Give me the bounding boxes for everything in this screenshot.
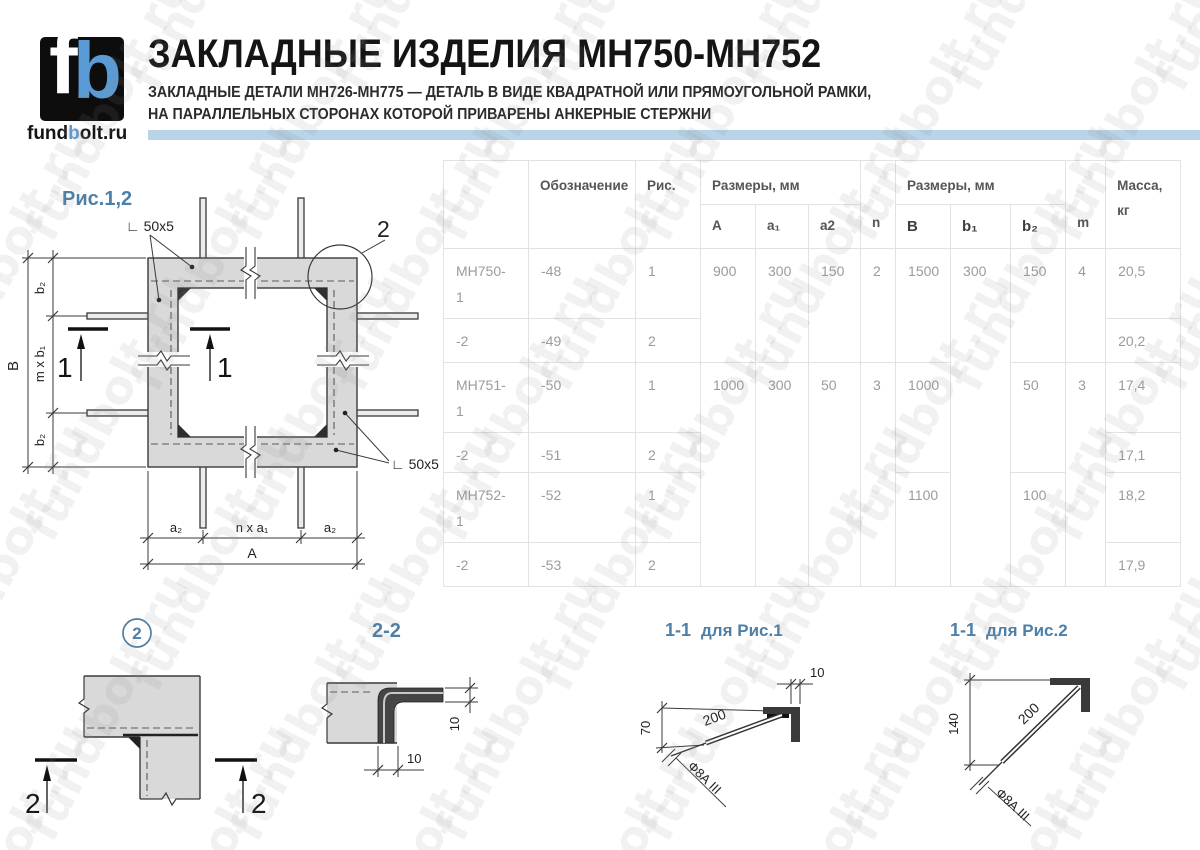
detail-2-2-dim-bottom: 10 bbox=[407, 751, 421, 766]
cell-designation: -52 bbox=[529, 473, 636, 543]
detail-ref-label: 2 bbox=[377, 216, 390, 242]
dim-B: B bbox=[5, 361, 22, 371]
col-header-b2: b₂ bbox=[1011, 205, 1066, 249]
detail-2-drawing: 2 2 bbox=[25, 676, 267, 819]
accent-divider bbox=[148, 130, 1200, 140]
cell-mass: 17,4 bbox=[1106, 363, 1181, 433]
main-drawing: 2 1 1 B b₂ m x b₁ b₂ a₂ n x a₁ a₂ A ∟ 50… bbox=[0, 150, 460, 600]
logo-letter-b: b bbox=[73, 31, 122, 111]
detail-2-2-dim-right: 10 bbox=[447, 717, 462, 731]
logo: b f bbox=[40, 37, 124, 121]
cell-m: 3 bbox=[1066, 363, 1106, 587]
cell-mass: 17,9 bbox=[1106, 543, 1181, 587]
details-drawing: 2 2 2 bbox=[0, 600, 1200, 850]
cell-fig: 1 bbox=[636, 249, 701, 319]
table-row: МН750-1 -48 1 900 300 150 2 1500 300 150… bbox=[444, 249, 1181, 319]
col-group-sizes-a: Размеры, мм bbox=[701, 161, 861, 205]
cell-fig: 1 bbox=[636, 473, 701, 543]
col-header-a1: a₁ bbox=[756, 205, 809, 249]
col-header-m: m bbox=[1066, 161, 1106, 249]
dim-b2-bottom: b₂ bbox=[32, 434, 47, 446]
col-header-n: n bbox=[861, 161, 896, 249]
cell-a1: 300 bbox=[756, 363, 809, 587]
dim-140: 140 bbox=[946, 713, 961, 735]
cell-designation: -53 bbox=[529, 543, 636, 587]
cell-mass: 20,5 bbox=[1106, 249, 1181, 319]
col-header-B: В bbox=[896, 205, 951, 249]
cell-m: 4 bbox=[1066, 249, 1106, 363]
detail-2-badge: 2 bbox=[123, 619, 151, 647]
dim-10-fig1: 10 bbox=[810, 665, 824, 680]
col-header-mass: Масса, кг bbox=[1106, 161, 1181, 249]
cell-mass: 18,2 bbox=[1106, 473, 1181, 543]
section-2-left-label: 2 bbox=[25, 788, 41, 819]
cell-fig: 2 bbox=[636, 433, 701, 473]
detail-2-2-drawing: 10 10 bbox=[322, 677, 478, 777]
page-title: ЗАКЛАДНЫЕ ИЗДЕЛИЯ МН750-МН752 bbox=[148, 33, 821, 75]
dim-m-b1: m x b₁ bbox=[32, 345, 47, 382]
section-1a-label: 1 bbox=[57, 352, 73, 383]
cell-designation: -48 bbox=[529, 249, 636, 319]
site-name: fundbolt.ru bbox=[27, 123, 127, 145]
section-marker-1a: 1 bbox=[57, 329, 108, 383]
cell-name: -2 bbox=[444, 433, 529, 473]
cell-b1: 300 bbox=[951, 249, 1011, 587]
cell-name: МН752-1 bbox=[444, 473, 529, 543]
cell-A: 1000 bbox=[701, 363, 756, 587]
cell-a2: 50 bbox=[809, 363, 861, 587]
detail-2-badge-label: 2 bbox=[132, 624, 141, 643]
col-header-fig: Рис. bbox=[636, 161, 701, 249]
col-header-name bbox=[444, 161, 529, 249]
cell-a2: 150 bbox=[809, 249, 861, 363]
cell-b2: 50 bbox=[1011, 363, 1066, 473]
cell-designation: -50 bbox=[529, 363, 636, 433]
dim-n-a1: n x a₁ bbox=[236, 520, 269, 535]
cell-mass: 20,2 bbox=[1106, 319, 1181, 363]
rod-spec-fig2: Ф8А III bbox=[993, 785, 1033, 823]
col-header-a2: a2 bbox=[809, 205, 861, 249]
cell-name: МН750-1 bbox=[444, 249, 529, 319]
cell-fig: 2 bbox=[636, 319, 701, 363]
section-1-1-fig1-drawing: Ф8А III 70 200 10 bbox=[638, 665, 824, 807]
dim-b2-top: b₂ bbox=[32, 282, 47, 294]
cell-mass: 17,1 bbox=[1106, 433, 1181, 473]
spec-table: Обозначение Рис. Размеры, мм n Размеры, … bbox=[443, 160, 1181, 587]
section-2-right-label: 2 bbox=[251, 788, 267, 819]
cell-B: 1500 bbox=[896, 249, 951, 363]
col-header-b1: b₁ bbox=[951, 205, 1011, 249]
section-marker-2-left: 2 bbox=[25, 760, 77, 819]
dim-A: A bbox=[247, 545, 257, 561]
cell-n: 3 bbox=[861, 363, 896, 587]
cell-n: 2 bbox=[861, 249, 896, 363]
cell-B: 1000 bbox=[896, 363, 951, 473]
col-header-A: A bbox=[701, 205, 756, 249]
subtitle-line-1: ЗАКЛАДНЫЕ ДЕТАЛИ МН726-МН775 — ДЕТАЛЬ В … bbox=[148, 82, 871, 104]
cell-b2: 100 bbox=[1011, 473, 1066, 587]
section-1b-label: 1 bbox=[217, 352, 233, 383]
angle-label-bottom: ∟ 50x5 bbox=[391, 456, 439, 472]
cell-name: -2 bbox=[444, 543, 529, 587]
subtitle-line-2: НА ПАРАЛЛЕЛЬНЫХ СТОРОНАХ КОТОРОЙ ПРИВАРЕ… bbox=[148, 104, 871, 126]
section-1-1-fig2-drawing: Ф8А III 140 200 bbox=[946, 673, 1090, 826]
fig1-dims bbox=[656, 679, 813, 753]
cell-B: 1100 bbox=[896, 473, 951, 587]
cell-fig: 1 bbox=[636, 363, 701, 433]
spec-table-container: Обозначение Рис. Размеры, мм n Размеры, … bbox=[443, 160, 1181, 587]
dim-70: 70 bbox=[638, 721, 653, 735]
rod-spec-fig1: Ф8А III bbox=[685, 758, 724, 797]
page-subtitle: ЗАКЛАДНЫЕ ДЕТАЛИ МН726-МН775 — ДЕТАЛЬ В … bbox=[148, 82, 871, 125]
cell-designation: -49 bbox=[529, 319, 636, 363]
cell-name: МН751-1 bbox=[444, 363, 529, 433]
col-group-sizes-b: Размеры, мм bbox=[896, 161, 1066, 205]
cell-designation: -51 bbox=[529, 433, 636, 473]
section-marker-2-right: 2 bbox=[215, 760, 267, 819]
cell-fig: 2 bbox=[636, 543, 701, 587]
cell-a1: 300 bbox=[756, 249, 809, 363]
dim-a2-right: a₂ bbox=[324, 520, 336, 535]
cell-name: -2 bbox=[444, 319, 529, 363]
dim-a2-left: a₂ bbox=[170, 520, 182, 535]
logo-letter-f: f bbox=[49, 21, 78, 107]
angle-label-top: ∟ 50x5 bbox=[126, 218, 174, 234]
cell-b2: 150 bbox=[1011, 249, 1066, 363]
table-row: МН751-1 -50 1 1000 300 50 3 1000 50 3 17… bbox=[444, 363, 1181, 433]
cell-A: 900 bbox=[701, 249, 756, 363]
col-header-designation: Обозначение bbox=[529, 161, 636, 249]
